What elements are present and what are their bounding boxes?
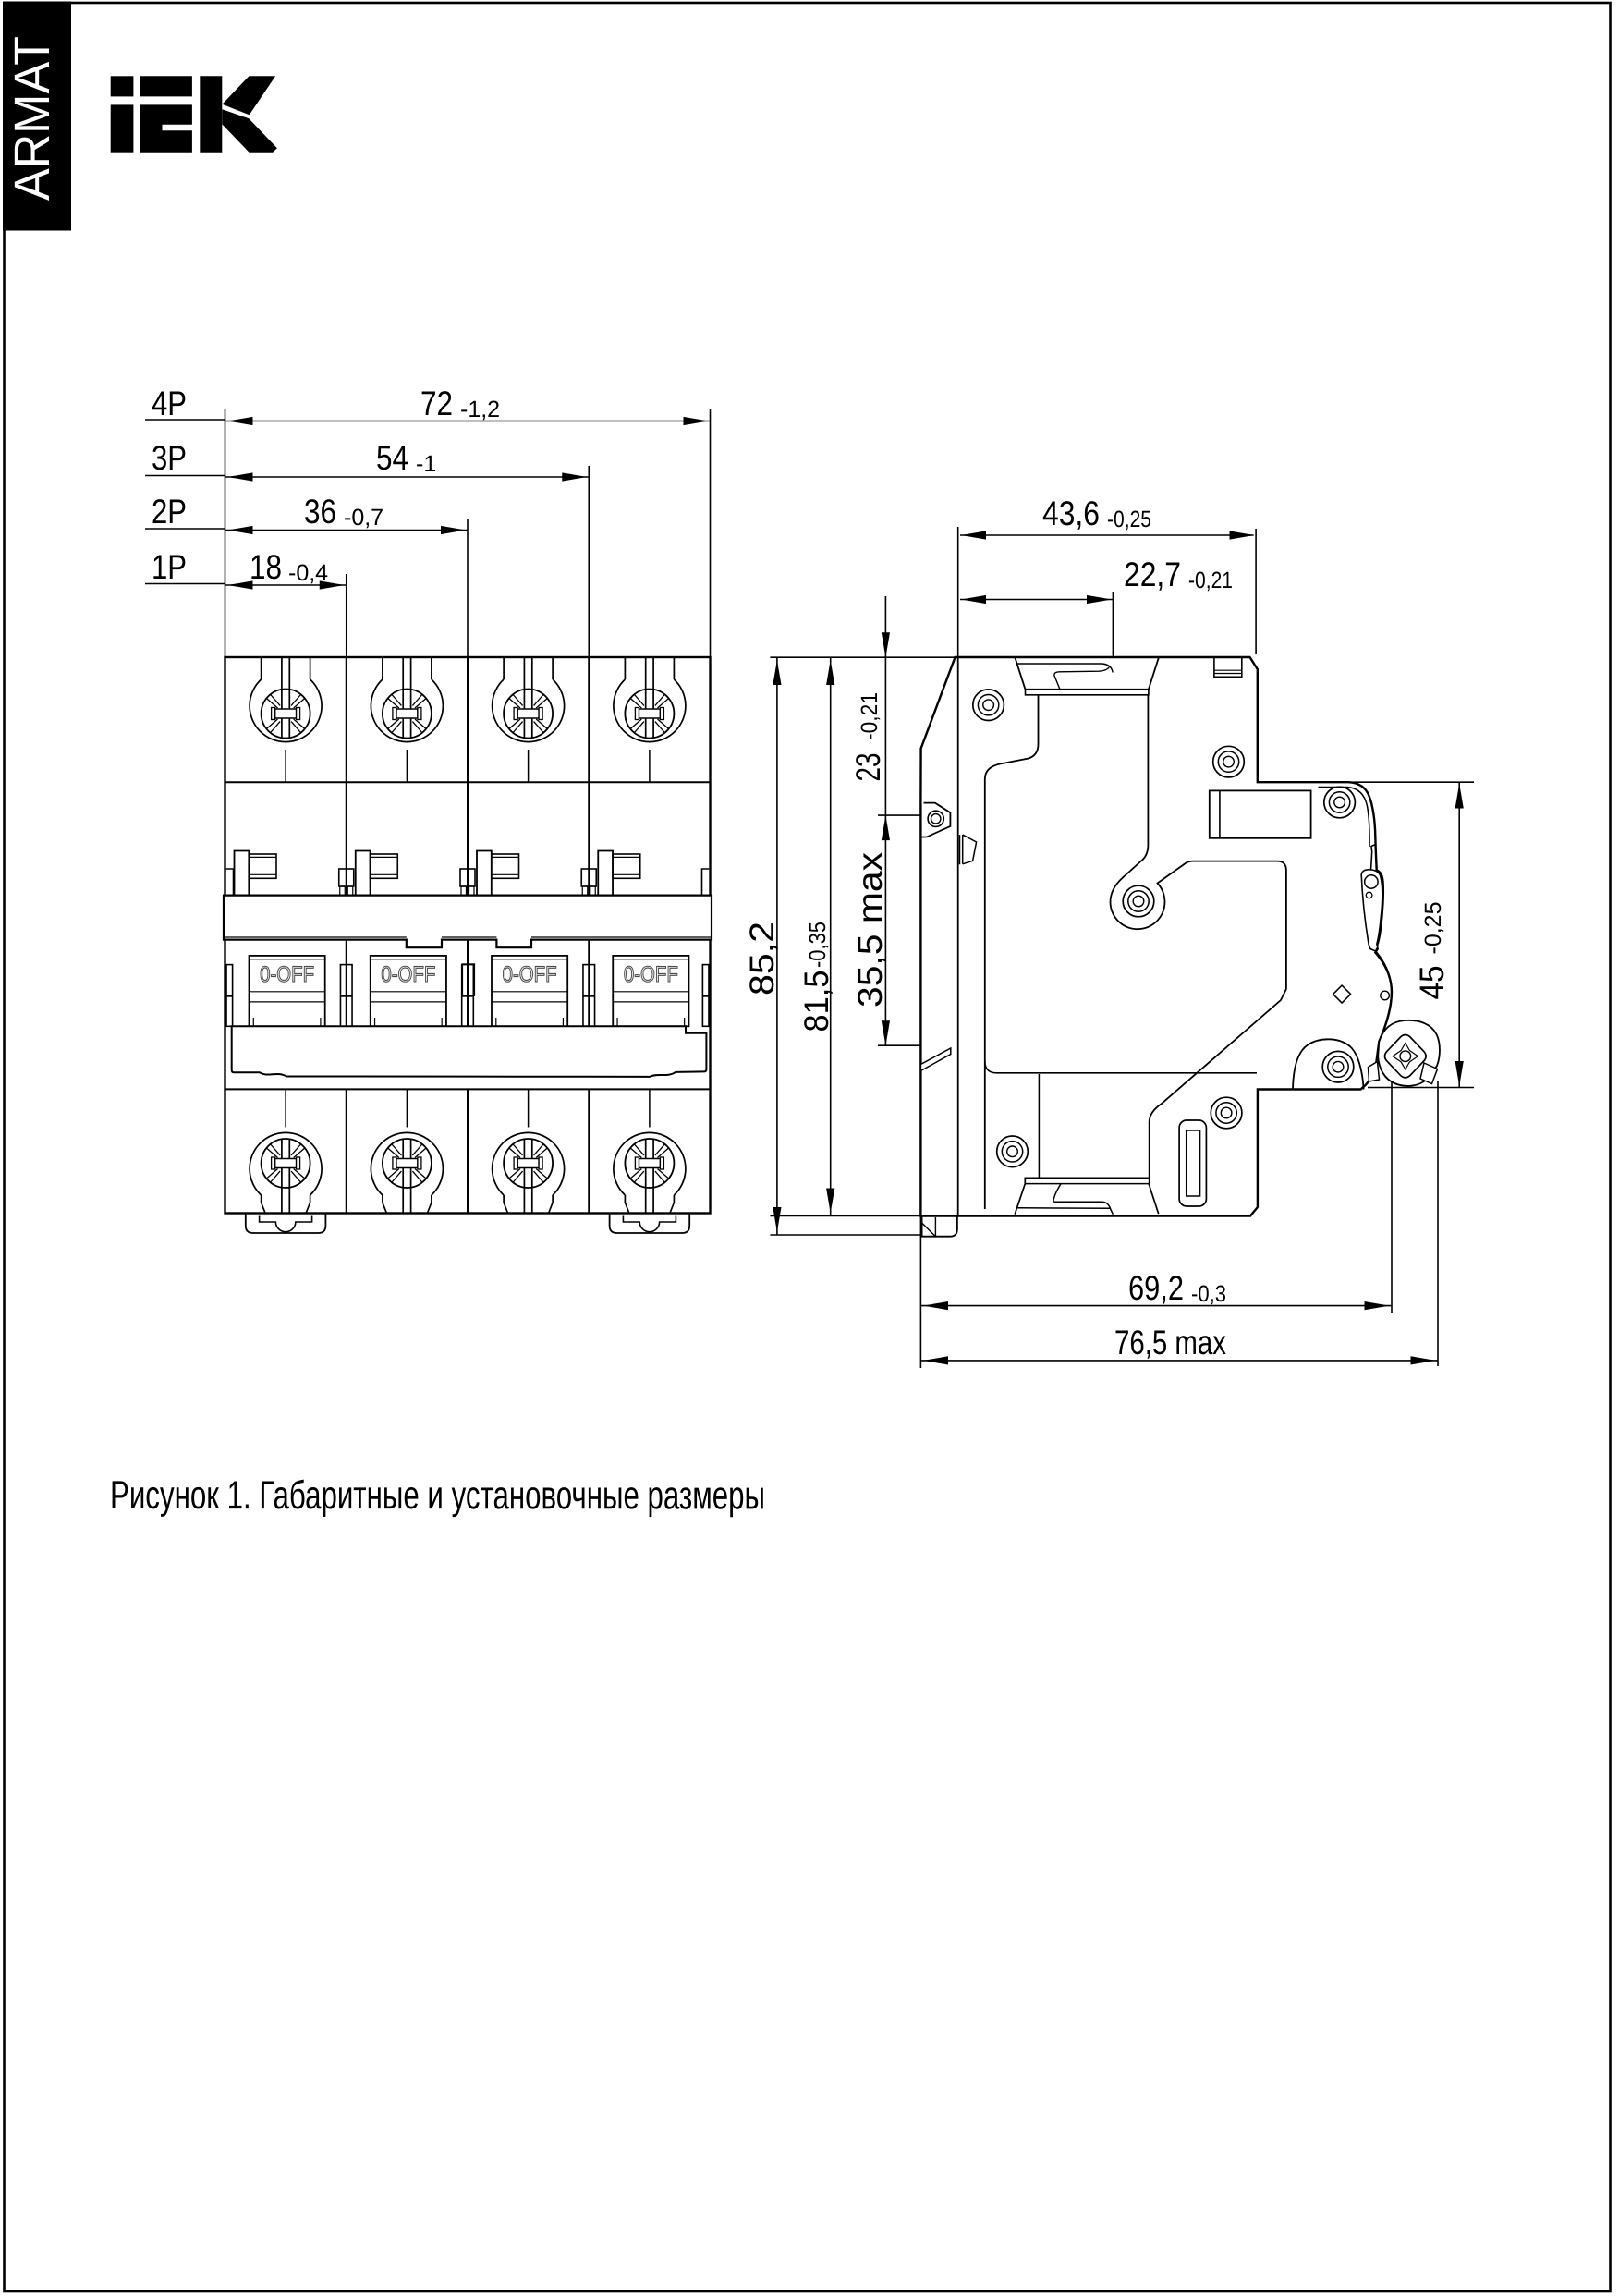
svg-text:76,5 max: 76,5 max — [1114, 1324, 1226, 1362]
svg-text:36: 36 — [304, 493, 336, 531]
svg-text:45: 45 — [1413, 966, 1451, 1000]
svg-text:-0,25: -0,25 — [1107, 507, 1151, 532]
svg-text:43,6: 43,6 — [1042, 495, 1100, 532]
svg-text:2P: 2P — [152, 493, 187, 531]
svg-text:69,2: 69,2 — [1128, 1269, 1184, 1307]
svg-text:0-OFF: 0-OFF — [624, 962, 678, 987]
svg-text:0-OFF: 0-OFF — [503, 962, 557, 987]
svg-text:-1: -1 — [416, 451, 436, 477]
svg-text:1P: 1P — [152, 548, 187, 586]
svg-text:72: 72 — [420, 385, 453, 422]
svg-text:-0,21: -0,21 — [1188, 568, 1233, 593]
svg-text:0-OFF: 0-OFF — [260, 962, 314, 987]
svg-text:-0,4: -0,4 — [288, 560, 328, 586]
svg-text:22,7: 22,7 — [1124, 556, 1181, 593]
svg-text:0-OFF: 0-OFF — [381, 962, 435, 987]
svg-text:81,5: 81,5 — [797, 971, 835, 1032]
svg-text:-0,25: -0,25 — [1420, 902, 1446, 955]
svg-text:85,2: 85,2 — [743, 922, 781, 995]
svg-text:18: 18 — [250, 548, 282, 586]
svg-text:35,5 max: 35,5 max — [851, 851, 889, 1008]
svg-text:-1,2: -1,2 — [460, 397, 500, 422]
svg-text:-0,7: -0,7 — [344, 505, 383, 531]
svg-text:-0,21: -0,21 — [857, 692, 883, 740]
svg-text:-0,35: -0,35 — [805, 922, 831, 968]
svg-text:Рисунок 1. Габаритные и устано: Рисунок 1. Габаритные и установочные раз… — [110, 1473, 765, 1518]
svg-text:4P: 4P — [152, 385, 187, 422]
svg-text:54: 54 — [376, 439, 408, 477]
svg-text:ARMAT: ARMAT — [5, 36, 60, 201]
svg-text:23: 23 — [849, 753, 887, 782]
svg-text:-0,3: -0,3 — [1191, 1281, 1226, 1307]
svg-text:3P: 3P — [152, 439, 187, 477]
